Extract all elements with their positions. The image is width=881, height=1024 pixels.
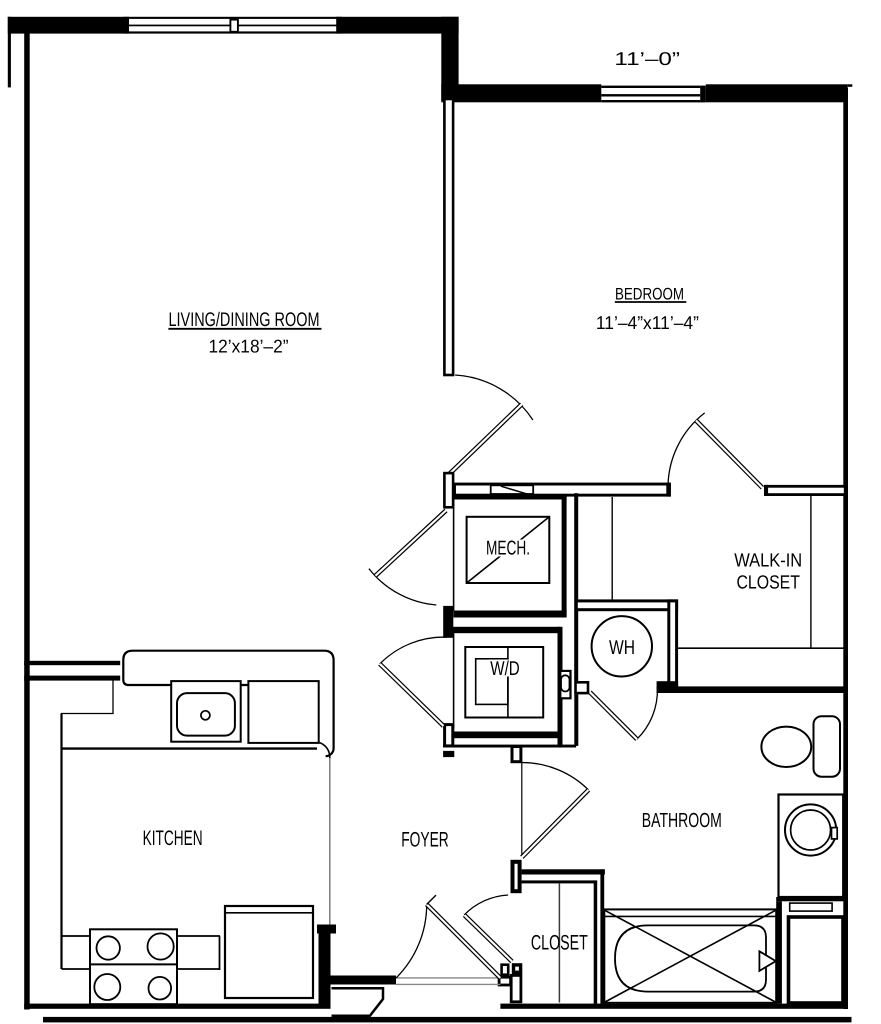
svg-text:W/D: W/D <box>490 658 520 680</box>
svg-text:FOYER: FOYER <box>401 829 449 852</box>
svg-text:BEDROOM: BEDROOM <box>615 285 684 304</box>
svg-text:BATHROOM: BATHROOM <box>642 810 722 832</box>
svg-text:CLOSET: CLOSET <box>531 932 588 955</box>
svg-text:MECH.: MECH. <box>486 538 530 560</box>
svg-text:12’x18’–2”: 12’x18’–2” <box>209 336 289 357</box>
svg-text:11’–0”: 11’–0” <box>614 48 680 69</box>
svg-text:WALK-IN: WALK-IN <box>734 551 802 572</box>
svg-text:CLOSET: CLOSET <box>736 573 800 594</box>
svg-text:WH: WH <box>609 637 635 659</box>
svg-text:LIVING/DINING ROOM: LIVING/DINING ROOM <box>169 309 320 331</box>
svg-text:KITCHEN: KITCHEN <box>143 827 203 850</box>
svg-text:11’–4”x11’–4”: 11’–4”x11’–4” <box>596 312 699 333</box>
